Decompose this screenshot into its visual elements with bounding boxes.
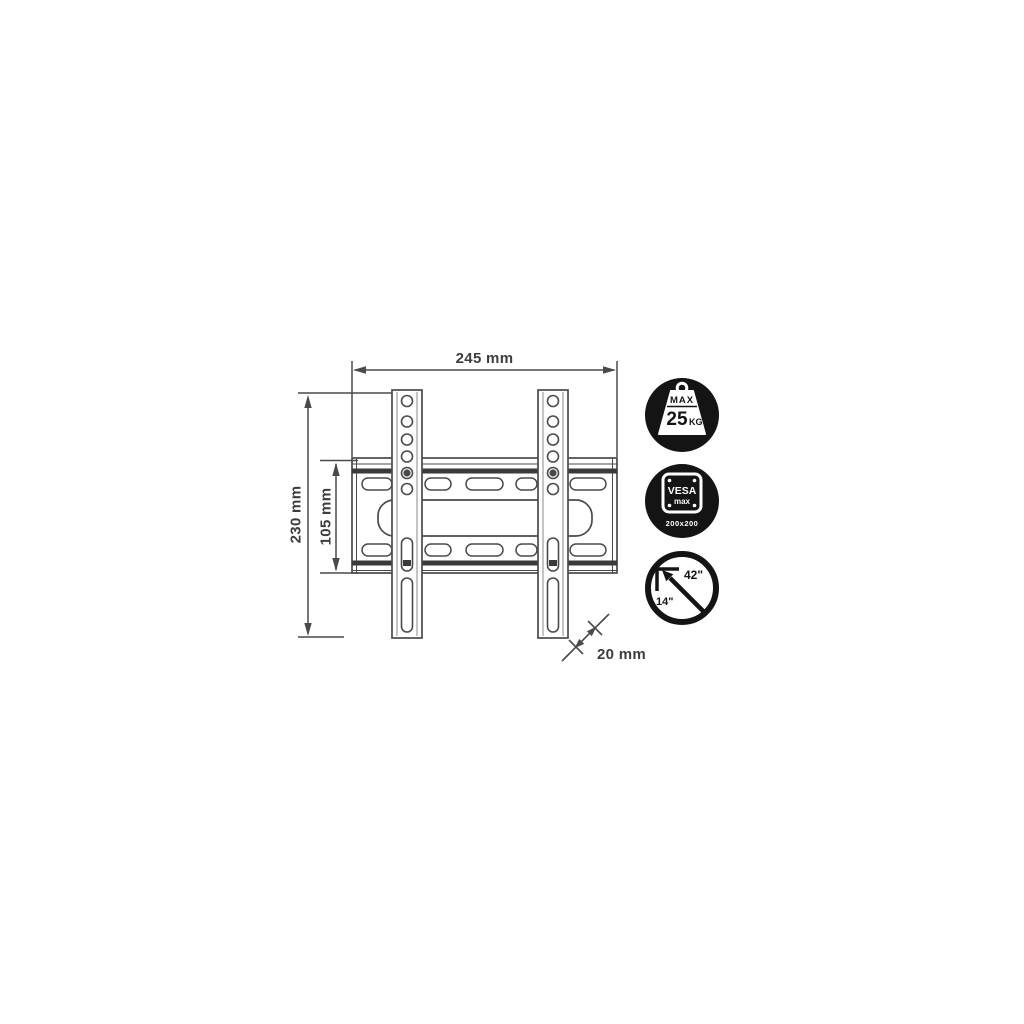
arrow-down-icon: [304, 623, 311, 636]
product-diagram: 245 mm 230 mm 105 mm 20 mm MAX 25 KG VES…: [0, 0, 1024, 1024]
depth-dimension-label: 20 mm: [597, 646, 646, 663]
arrow-right-icon: [603, 366, 616, 374]
max-weight-value: 25: [666, 409, 688, 430]
right-arm-slot-band-showthrough: [549, 560, 557, 566]
bracket-drawing: [0, 0, 1024, 1024]
left-arm: [392, 390, 422, 638]
screen-size-min-label: 14": [656, 596, 673, 608]
arrow-left-icon: [353, 366, 366, 374]
max-weight-unit: KG: [689, 417, 703, 427]
left-arm-hole-band-showthrough: [403, 469, 410, 476]
vesa-pattern-label: 200x200: [666, 519, 699, 528]
right-arm-hole-band-showthrough: [549, 469, 556, 476]
max-weight-label: MAX: [670, 395, 694, 406]
vesa-qualifier-label: max: [674, 497, 691, 506]
screen-size-max-label: 42": [684, 568, 703, 582]
right-arm: [538, 390, 568, 638]
screen-diagonal-icon: 42" 14": [644, 550, 720, 626]
weight-icon: MAX 25 KG: [644, 377, 720, 453]
plate-height-dimension-label: 105 mm: [318, 467, 335, 567]
left-arm-slots: [402, 538, 413, 632]
vesa-name-label: VESA: [668, 485, 697, 497]
left-arm-slot-band-showthrough: [403, 560, 411, 566]
right-arm-slots: [548, 538, 559, 632]
width-dimension-label: 245 mm: [352, 350, 617, 367]
height-dimension-label: 230 mm: [288, 465, 305, 565]
max-weight-badge: MAX 25 KG: [644, 377, 720, 453]
screen-size-badge: 42" 14": [644, 550, 720, 626]
arrow-up-icon: [304, 395, 311, 408]
vesa-badge: VESA max 200x200: [644, 463, 720, 539]
vesa-plate-icon: VESA max 200x200: [644, 463, 720, 539]
